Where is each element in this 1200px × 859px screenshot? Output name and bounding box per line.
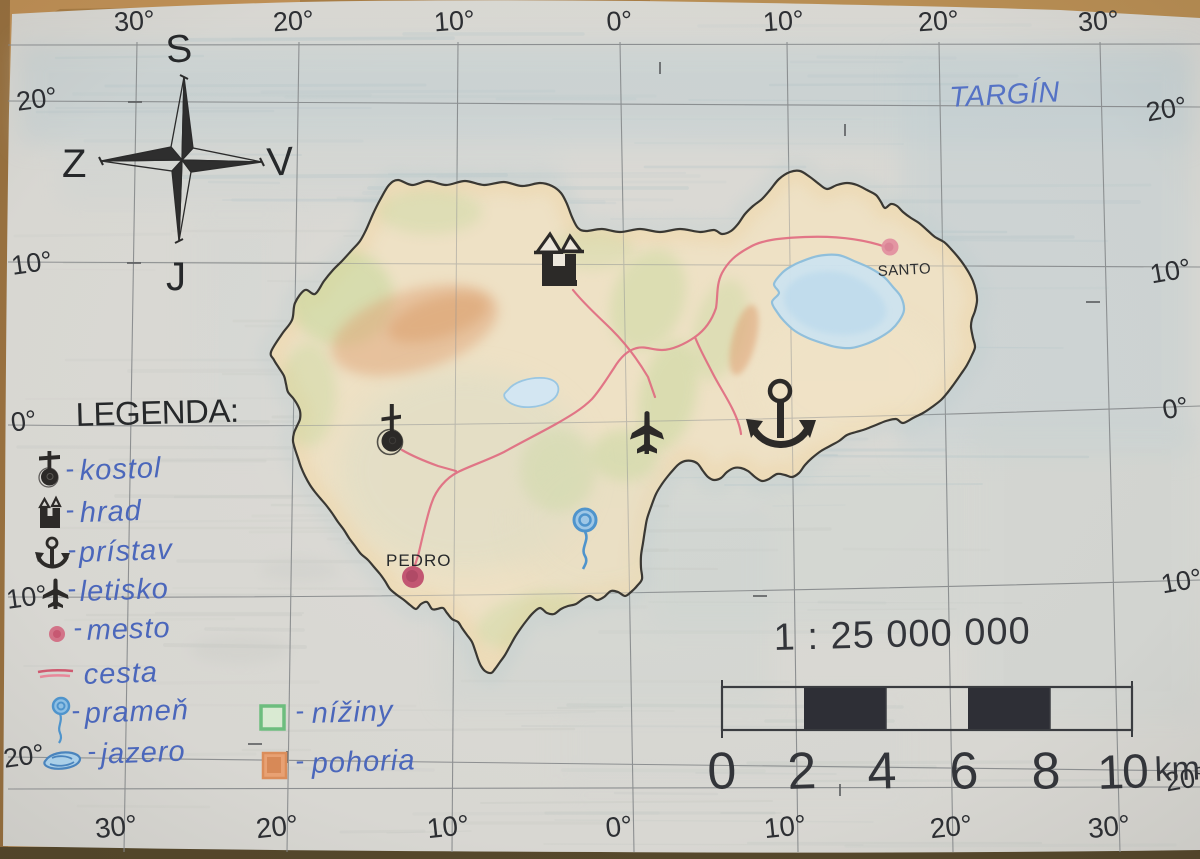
svg-text:-: - [65, 494, 75, 524]
svg-text:mesto: mesto [86, 612, 171, 647]
svg-text:10°: 10° [762, 5, 805, 38]
svg-text:4: 4 [866, 742, 896, 801]
svg-text:10: 10 [1097, 745, 1149, 800]
svg-text:30°: 30° [1086, 809, 1131, 844]
svg-text:10°: 10° [433, 5, 476, 38]
svg-text:cesta: cesta [83, 656, 158, 691]
svg-text:hrad: hrad [79, 495, 142, 529]
svg-text:S: S [164, 27, 194, 72]
svg-text:jazero: jazero [96, 736, 186, 771]
svg-text:pohoria: pohoria [310, 744, 416, 780]
svg-text:kostol: kostol [79, 452, 162, 487]
svg-text:2: 2 [786, 742, 815, 801]
svg-text:nížiny: nížiny [311, 695, 394, 730]
svg-text:km: km [1154, 749, 1200, 789]
svg-text:V: V [266, 139, 296, 185]
svg-text:-: - [87, 736, 97, 766]
svg-text:SANTO: SANTO [877, 260, 931, 280]
svg-text:20°: 20° [14, 81, 59, 116]
svg-text:30°: 30° [93, 809, 138, 844]
svg-text:J: J [166, 255, 186, 299]
svg-text:10°: 10° [1159, 563, 1200, 600]
svg-text:30°: 30° [1077, 5, 1120, 38]
svg-text:-: - [295, 745, 305, 775]
svg-text:LEGENDA:: LEGENDA: [75, 392, 239, 433]
svg-text:20°: 20° [1, 738, 46, 773]
svg-text:0°: 0° [604, 810, 634, 844]
svg-text:0: 0 [706, 742, 735, 801]
svg-text:-: - [71, 695, 81, 725]
svg-text:-: - [73, 612, 83, 642]
svg-text:prameň: prameň [83, 694, 189, 730]
svg-text:TARGÍN: TARGÍN [949, 75, 1061, 114]
svg-text:-: - [65, 453, 75, 483]
svg-text:PEDRO: PEDRO [386, 551, 451, 570]
svg-text:prístav: prístav [77, 534, 174, 569]
svg-text:8: 8 [1030, 742, 1059, 801]
svg-text:-: - [67, 534, 77, 564]
svg-text:-: - [67, 573, 77, 603]
svg-text:0°: 0° [9, 404, 39, 437]
svg-text:letisko: letisko [79, 573, 169, 608]
svg-text:10°: 10° [9, 245, 54, 280]
svg-text:30°: 30° [113, 5, 156, 38]
svg-text:20°: 20° [917, 5, 960, 38]
svg-text:Z: Z [62, 142, 86, 186]
svg-text:20°: 20° [254, 809, 299, 844]
svg-text:10°: 10° [762, 809, 807, 844]
svg-text:0°: 0° [1160, 391, 1191, 425]
svg-text:0°: 0° [605, 5, 633, 37]
svg-text:1 : 25 000 000: 1 : 25 000 000 [773, 610, 1031, 659]
svg-text:20°: 20° [272, 5, 315, 38]
svg-text:-: - [295, 695, 305, 725]
svg-text:6: 6 [948, 742, 977, 801]
svg-text:20°: 20° [928, 809, 973, 844]
svg-text:10°: 10° [4, 579, 49, 614]
svg-text:10°: 10° [425, 809, 470, 844]
